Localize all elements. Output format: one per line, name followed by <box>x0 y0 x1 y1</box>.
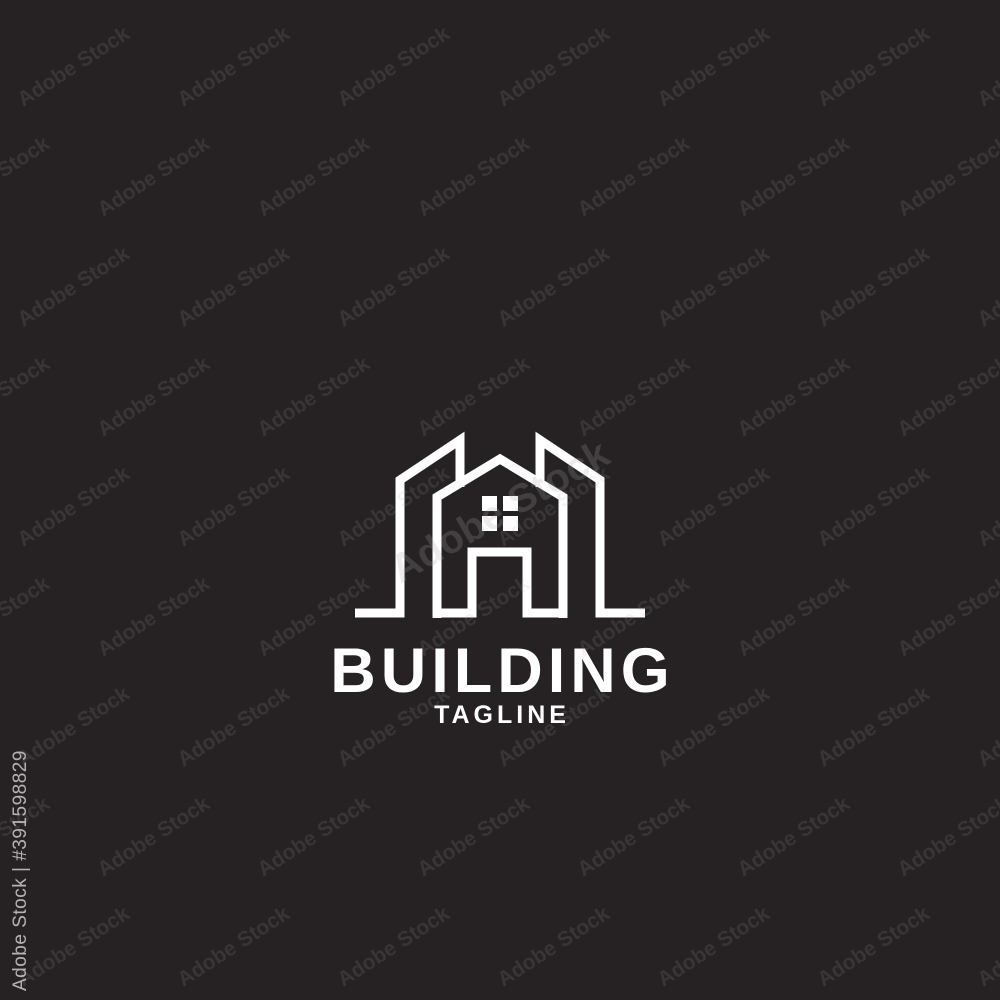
right-tower-outline <box>540 440 645 613</box>
left-tower-outline <box>355 440 460 613</box>
door-outline <box>433 552 567 618</box>
brand-name: BUILDING <box>0 640 1000 703</box>
house-outline <box>437 459 563 618</box>
tagline: TAGLINE <box>0 703 1000 728</box>
stock-image-canvas: BUILDING TAGLINE Adobe StockAdobe StockA… <box>0 0 1000 1000</box>
building-logo-icon <box>0 0 1000 1000</box>
window-icon <box>482 496 518 531</box>
